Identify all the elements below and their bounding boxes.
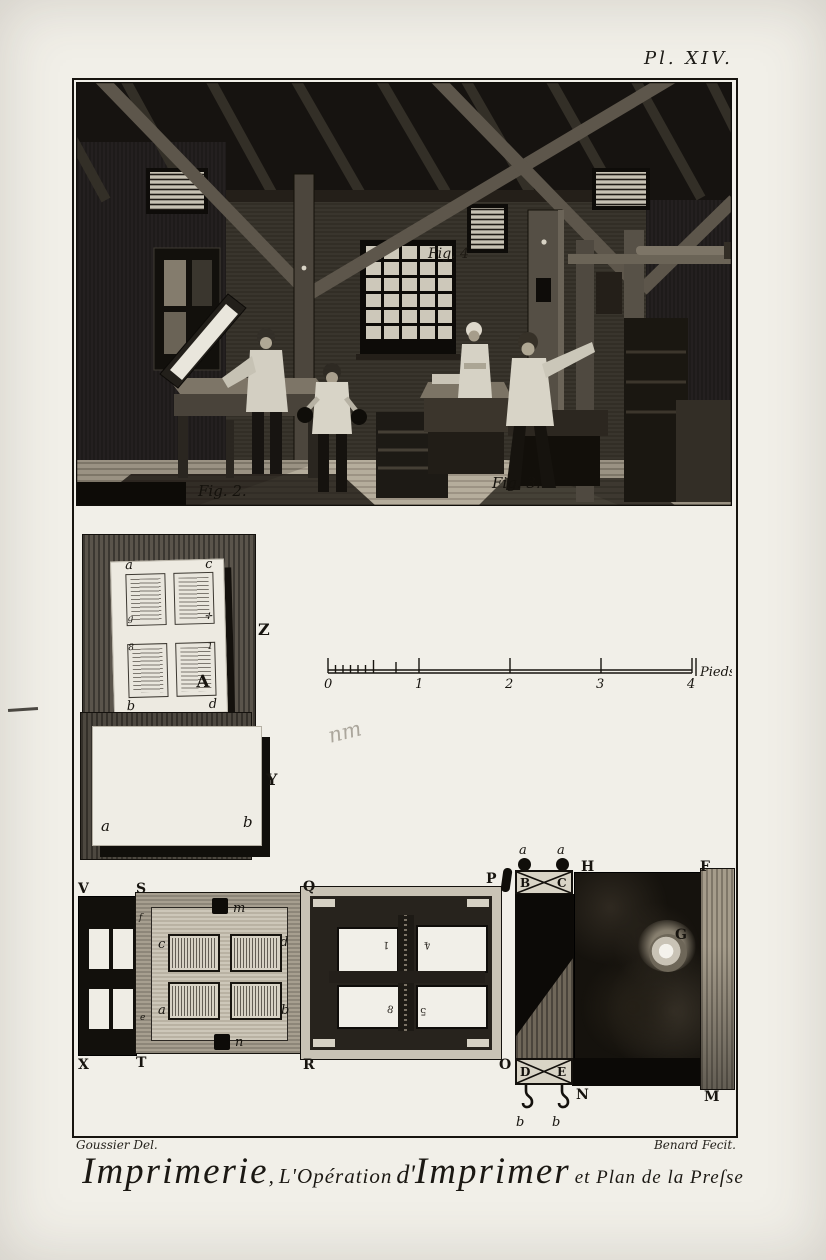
- plan-label-O: O: [499, 1058, 512, 1072]
- sheet-label-Y: Y: [266, 772, 277, 788]
- forme-corner-d: d: [209, 698, 218, 711]
- plan-foot-block: [78, 896, 137, 1056]
- engraving-plate-page: Pl. XIV.: [0, 0, 826, 1260]
- plan-coffin: [135, 892, 302, 1054]
- plan-hook-left: [518, 1084, 534, 1116]
- clamp-top-label: m: [233, 902, 245, 915]
- plan-label-Q: Q: [303, 880, 316, 894]
- title-comma: ,: [269, 1164, 275, 1188]
- plan-type-page-a: [168, 982, 220, 1020]
- knob-label-a-left: a: [519, 844, 527, 857]
- plan-label-M: M: [704, 1090, 720, 1104]
- screw-label-G: G: [675, 928, 687, 942]
- attic-window-center: [467, 204, 508, 253]
- page-label-d: d: [280, 936, 288, 949]
- plan-coffin-inner: [151, 907, 288, 1041]
- plan-clamp-bottom: [214, 1034, 230, 1050]
- plan-label-X: X: [78, 1058, 89, 1072]
- forme-label-Z: Z: [258, 622, 270, 638]
- window-number-5: 5: [420, 1005, 426, 1016]
- title-word-plan: et Plan de la Preſse: [575, 1167, 744, 1188]
- forme-mark-1: g: [127, 615, 133, 624]
- plate-number: Pl. XIV.: [644, 48, 733, 69]
- hook-label-b-left: b: [516, 1116, 524, 1129]
- window-number-1: 1: [383, 939, 390, 950]
- plan-box-BC: B C: [515, 870, 573, 895]
- plan-label-T: T: [136, 1056, 147, 1070]
- plan-label-F: F: [700, 860, 710, 874]
- plan-type-page-b: [230, 982, 282, 1020]
- plan-clamp-top: [212, 898, 228, 914]
- plan-type-page-d: [230, 934, 282, 972]
- frisket-window-1: [337, 927, 399, 973]
- plan-label-R: R: [303, 1058, 315, 1072]
- plan-label-H: H: [581, 860, 595, 874]
- box-letter-B: B: [520, 876, 530, 890]
- scale-bar: 0 1 2 3 4 Pieds.: [322, 650, 732, 694]
- wall-plate-beam: [226, 190, 646, 202]
- plate-title: Imprimerie, L'Opération d'Imprimer et Pl…: [40, 1150, 786, 1193]
- plan-pin-p: [500, 867, 512, 892]
- plan-tympan-frame: 1 4 8 5: [300, 886, 502, 1060]
- press-plan: m n f e c d a b 1 4 8 5: [78, 876, 738, 1116]
- plan-type-page-c: [168, 934, 220, 972]
- title-word-imprimer: Imprimer: [415, 1151, 571, 1192]
- sheet-corner-a: a: [101, 819, 110, 834]
- frisket-middle-bar: [329, 971, 485, 983]
- forme-big-letter-A: A: [196, 674, 210, 691]
- scale-tick-4: 4: [686, 677, 695, 692]
- scale-tick-3: 3: [596, 677, 604, 692]
- plan-label-V: V: [78, 882, 89, 896]
- page-label-c: c: [158, 938, 165, 951]
- plan-stone: [574, 872, 702, 1066]
- fig2-label: Fig. 2.: [197, 482, 247, 500]
- title-word-operation: L'Opération: [279, 1164, 393, 1188]
- scale-tick-0: 0: [324, 677, 332, 692]
- knob-label-a-right: a: [557, 844, 565, 857]
- foot-pane: [89, 989, 109, 1029]
- fig4-label: Fig. 4: [427, 246, 469, 262]
- rail-label-f: f: [139, 914, 142, 923]
- frisket-window-5: [416, 985, 488, 1029]
- attic-window-right: [592, 168, 650, 210]
- forme-corner-c: c: [205, 558, 213, 571]
- scale-unit: Pieds.: [699, 665, 732, 680]
- plan-cheek-shadow: [516, 895, 573, 1061]
- hook-label-b-right: b: [552, 1116, 560, 1129]
- page-label-b: b: [281, 1004, 289, 1017]
- blank-sheet: a b: [92, 726, 262, 846]
- plan-box-DE: D E: [515, 1058, 573, 1085]
- scale-tick-1: 1: [415, 677, 423, 692]
- forme-mark-4: 1: [207, 643, 213, 652]
- scale-tick-2: 2: [504, 677, 513, 692]
- foot-pane: [89, 929, 109, 969]
- forme-corner-a: a: [125, 559, 133, 572]
- margin-pencil-dash: [8, 707, 38, 712]
- box-letter-E: E: [557, 1065, 566, 1079]
- forme-mark-3: 8: [128, 644, 134, 653]
- foot-pane: [113, 929, 133, 969]
- forme-sheet: a c b d g ✛ 8 1 A: [110, 559, 228, 716]
- workshop-scene-engraving: Fig. 2. Fig. 3. Fig. 4: [76, 82, 732, 506]
- plan-right-rail: [700, 868, 735, 1090]
- title-word-imprimerie: Imprimerie: [82, 1151, 268, 1192]
- plan-label-N: N: [576, 1088, 589, 1102]
- clamp-bottom-label: n: [235, 1036, 243, 1049]
- box-letter-C: C: [557, 876, 567, 890]
- plan-hook-right: [554, 1084, 570, 1116]
- page-label-a: a: [158, 1004, 166, 1017]
- title-word-d: d': [396, 1160, 415, 1189]
- floor-corner-dark: [76, 482, 186, 506]
- fig3-label: Fig. 3.: [491, 474, 541, 492]
- plan-label-S: S: [136, 882, 147, 896]
- foot-pane: [113, 989, 133, 1029]
- sheet-corner-b: b: [243, 815, 253, 830]
- rail-label-e: e: [140, 1014, 145, 1023]
- plan-label-P: P: [486, 872, 497, 886]
- plan-black-bar: [572, 1058, 700, 1086]
- plan-cheek: [515, 894, 574, 1062]
- box-letter-D: D: [520, 1065, 530, 1079]
- forme-mark-2: ✛: [204, 613, 212, 622]
